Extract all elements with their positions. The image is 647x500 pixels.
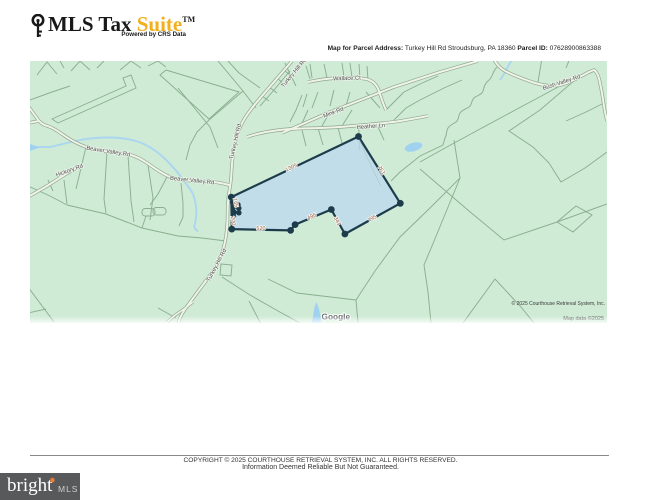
svg-text:© 2025 Courthouse Retrieval Sy: © 2025 Courthouse Retrieval System, Inc. bbox=[512, 300, 605, 307]
svg-text:200: 200 bbox=[229, 216, 236, 226]
svg-text:520: 520 bbox=[256, 226, 265, 232]
svg-text:Wallace Ct: Wallace Ct bbox=[333, 76, 361, 83]
